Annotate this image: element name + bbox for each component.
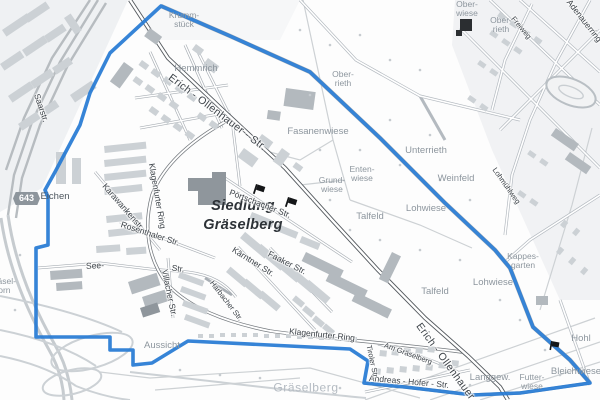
map-canvas [0, 0, 600, 400]
city-map[interactable]: 643 Krumm- stückHemmrichOber- wieseOber-… [0, 0, 600, 400]
poi-flag-icon [253, 184, 265, 197]
poi-flag-icons [253, 184, 560, 351]
road-klagenfurter-ring [148, 118, 462, 352]
urban-zones [0, 0, 600, 300]
road-number-badge: 643 [13, 192, 40, 205]
poi-flag-icon [285, 197, 297, 210]
